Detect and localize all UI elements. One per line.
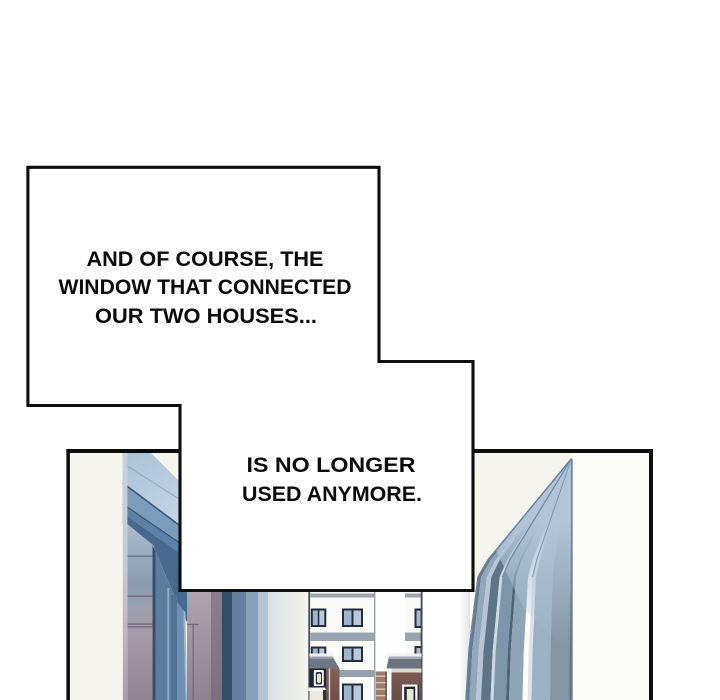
svg-text:AND OF COURSE, THE: AND OF COURSE, THE <box>87 248 324 271</box>
svg-text:IS NO LONGER: IS NO LONGER <box>247 454 416 477</box>
svg-text:OUR TWO HOUSES...: OUR TWO HOUSES... <box>95 305 317 328</box>
svg-text:USED ANYMORE.: USED ANYMORE. <box>242 483 422 506</box>
svg-text:WINDOW THAT CONNECTED: WINDOW THAT CONNECTED <box>59 276 352 299</box>
